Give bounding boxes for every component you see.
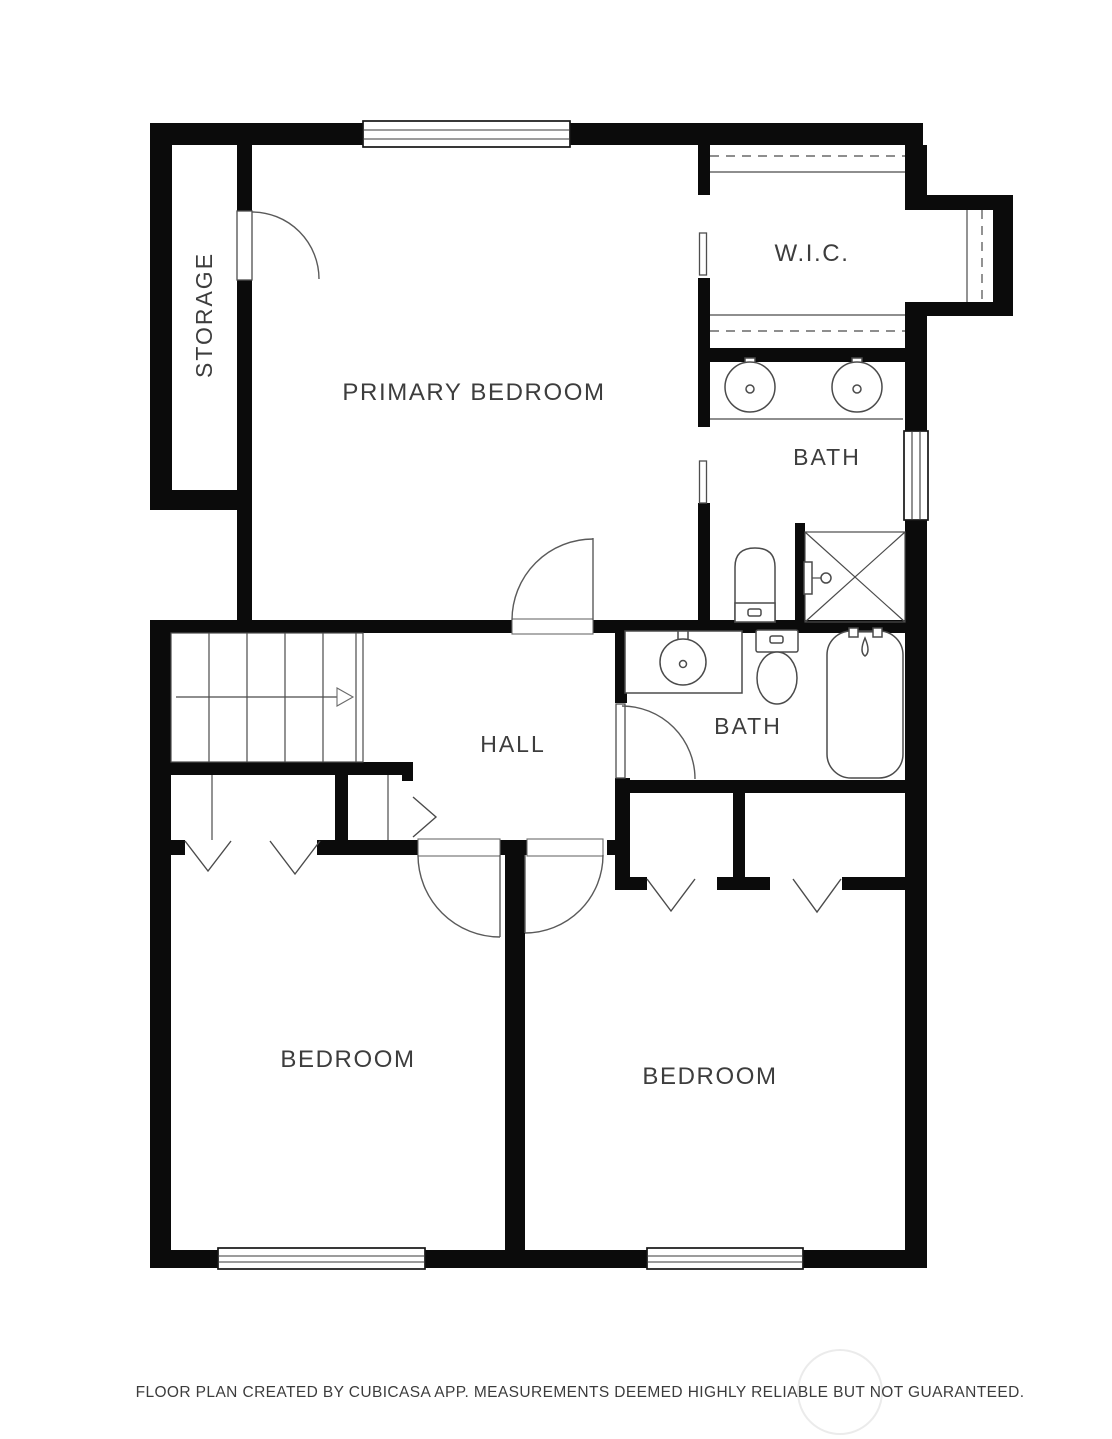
door-wic-sliding	[700, 233, 707, 275]
sink-vanity-icon	[625, 631, 742, 693]
wall-closet2-mid	[733, 793, 745, 877]
sink-icon	[832, 358, 882, 412]
windows	[218, 121, 928, 1269]
room-label-primary-bedroom: PRIMARY BEDROOM	[342, 379, 605, 406]
staircase	[171, 633, 363, 762]
bifold-door-icon	[793, 879, 841, 912]
wall-bottom-c	[803, 1250, 925, 1268]
door-bedroom-right	[525, 839, 603, 933]
bifold-door-icon	[413, 797, 436, 837]
room-label-wic: W.I.C.	[775, 240, 850, 267]
wall-bottom-b	[425, 1250, 647, 1268]
window-bedroom-left	[218, 1248, 425, 1269]
bathtub-icon	[827, 628, 903, 778]
wall-primary-wic-a	[698, 145, 710, 195]
floor-plan-page: STORAGE PRIMARY BEDROOM W.I.C. BATH HALL…	[0, 0, 1112, 1439]
shower-icon	[804, 532, 905, 622]
wall-closet2-front-c	[842, 877, 905, 890]
window-top	[363, 121, 570, 147]
room-label-bath-lower: BATH	[714, 713, 782, 739]
wall-stairs-bottom	[167, 762, 413, 775]
wall-right-top	[905, 145, 927, 197]
toilet-icon	[735, 548, 775, 622]
door-bath-lower	[616, 704, 695, 779]
wall-right-b	[905, 518, 927, 784]
stairs-direction-arrow-icon	[337, 688, 353, 706]
footer-credit: FLOOR PLAN CREATED BY CUBICASA APP. MEAS…	[136, 1384, 1025, 1401]
bath-upper-fixtures	[710, 358, 905, 622]
sink-icon	[725, 358, 775, 412]
wall-right-c	[905, 782, 927, 1268]
bath-lower-fixtures	[625, 628, 903, 778]
room-label-hall: HALL	[480, 731, 546, 757]
floor-plan-drawing: STORAGE PRIMARY BEDROOM W.I.C. BATH HALL…	[0, 0, 1112, 1439]
closets	[185, 156, 982, 912]
bifold-door-icon	[185, 841, 231, 871]
door-bedroom-left	[418, 839, 500, 937]
wall-storage-right-a	[237, 145, 252, 212]
wall-closet3-stub	[402, 775, 413, 781]
room-label-storage: STORAGE	[191, 252, 217, 378]
wall-storage-right-b	[237, 280, 252, 633]
wall-right-a	[905, 314, 927, 433]
wall-hall-south-d	[607, 840, 615, 855]
wall-hall-top-a	[150, 620, 512, 633]
wall-bottom-a	[150, 1250, 218, 1268]
door-storage	[237, 211, 319, 280]
room-label-bedroom-left: BEDROOM	[280, 1046, 415, 1073]
wall-center-bedrooms	[505, 840, 525, 1255]
window-bath-right	[904, 431, 928, 520]
bifold-door-icon	[270, 841, 320, 874]
wall-bump-bottom	[905, 302, 1013, 316]
wall-bath2-bottom	[615, 780, 920, 793]
doors	[237, 211, 707, 937]
wall-bump-right	[993, 195, 1013, 316]
door-primary-bedroom	[512, 538, 593, 634]
wall-hall-south-c	[500, 840, 527, 855]
door-bath-upper-sliding	[700, 461, 707, 503]
wall-left-upper	[150, 123, 172, 510]
window-bedroom-right	[647, 1248, 803, 1269]
wall-left-lower	[150, 620, 171, 1268]
wall-wic-bath-divider	[698, 348, 927, 362]
wall-storage-bottom	[150, 490, 252, 510]
toilet-icon	[756, 630, 798, 704]
room-label-bath-upper: BATH	[793, 444, 861, 470]
wall-closet3-left	[335, 775, 348, 843]
wall-hall-south-b	[317, 840, 418, 855]
wall-closet2-front-b	[717, 877, 770, 890]
wall-primary-wic-c	[698, 503, 710, 620]
wall-closet2-front-a	[620, 877, 647, 890]
room-label-bedroom-right: BEDROOM	[642, 1063, 777, 1090]
wall-hall-bath2-b	[615, 778, 630, 890]
wall-hall-south-a	[167, 840, 185, 855]
bifold-door-icon	[647, 879, 695, 911]
